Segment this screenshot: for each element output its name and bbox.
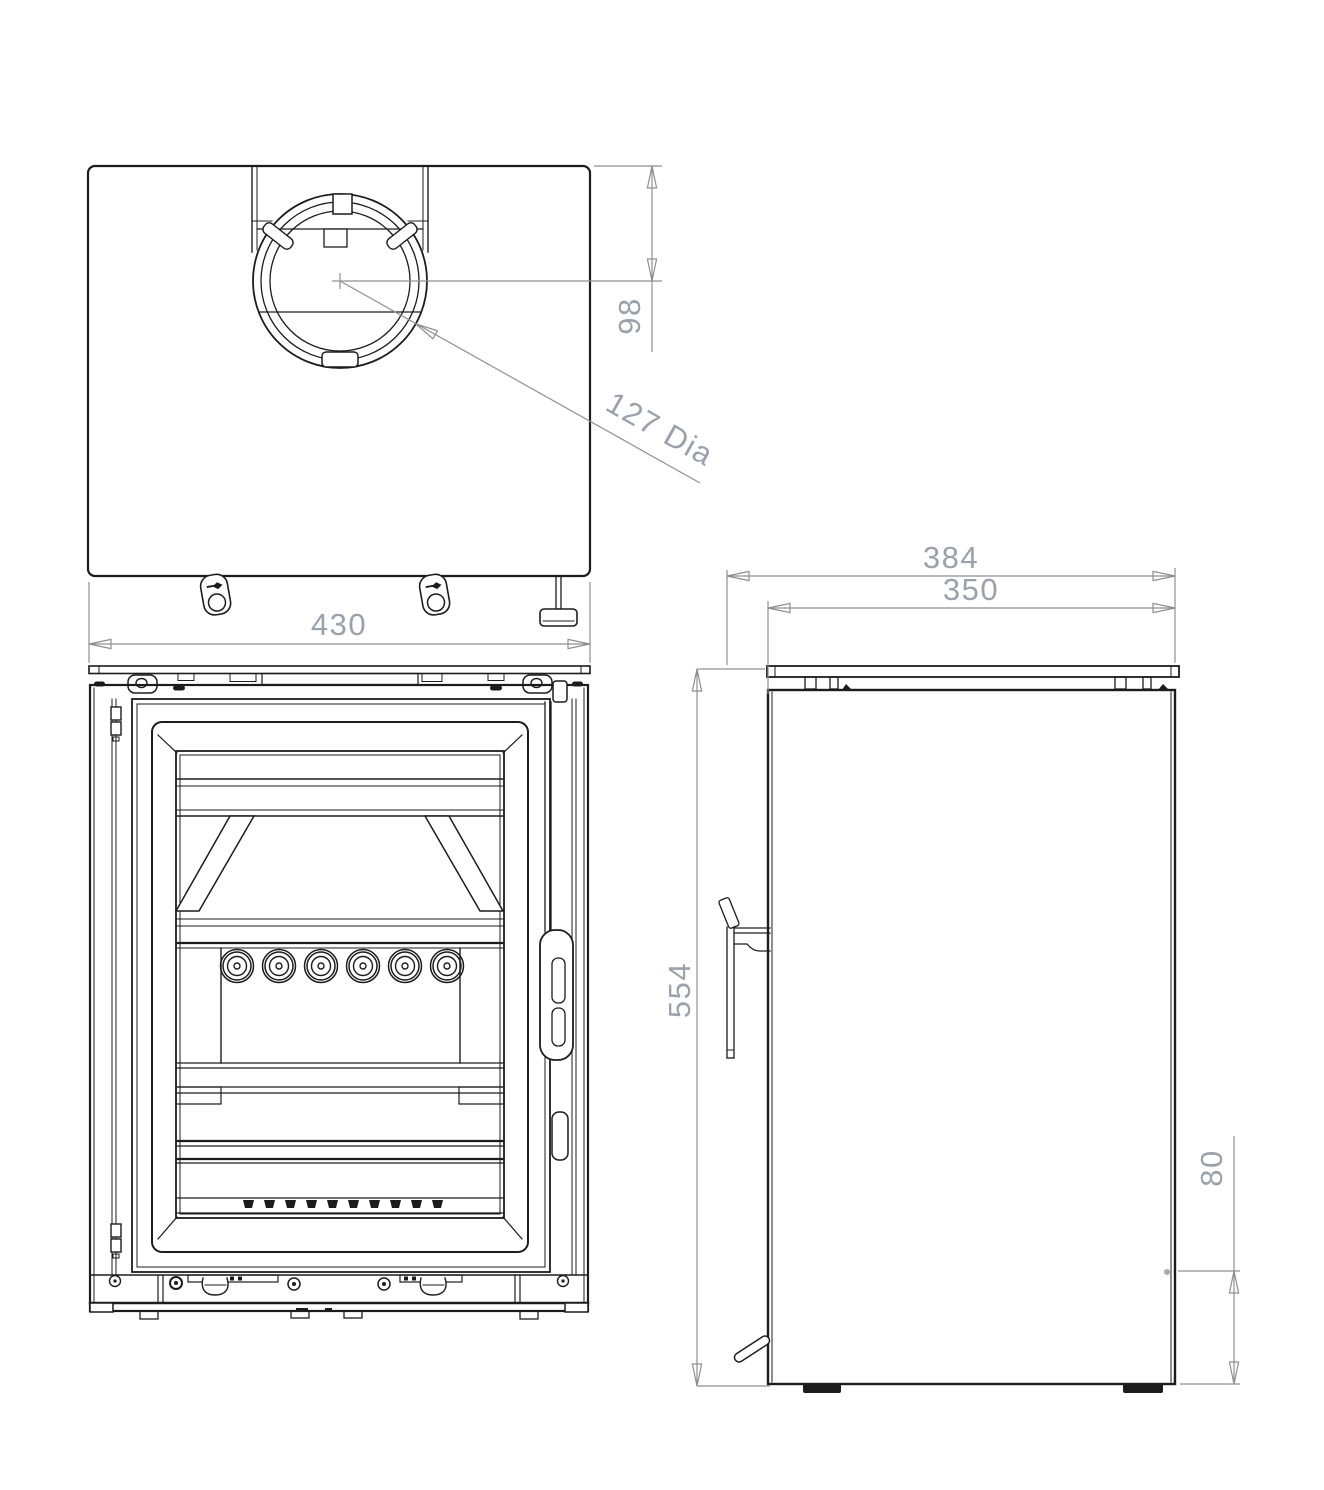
dim-text-flue-diameter: 127 Dia: [600, 385, 719, 473]
collar-bottom-tab: [322, 352, 358, 367]
riddling-lever: [733, 1334, 771, 1363]
dim-flue-98: 98: [346, 166, 662, 352]
front-top-rail: [94, 674, 583, 694]
dim-text-rear-outlet: 80: [1194, 1149, 1229, 1186]
adjustable-foot: [540, 576, 577, 626]
front-top-plate: [89, 666, 590, 674]
handle-grip: [540, 930, 573, 1060]
stove-dimension-drawing: 430 98 127 Dia 384 350 554: [0, 0, 1324, 1490]
side-view: [718, 666, 1179, 1393]
firebox-interior: [176, 779, 504, 1213]
stove-body-side: [768, 690, 1175, 1384]
collar-top-tab: [333, 194, 352, 214]
front-view: [89, 666, 590, 1319]
collar-centre-notch: [324, 229, 347, 247]
side-foot-rear: [1123, 1384, 1163, 1393]
top-plate-outline: [88, 166, 590, 576]
leader-flue-diameter: 127 Dia: [340, 281, 720, 483]
side-foot-front: [803, 1384, 841, 1393]
serrated-air-strip: [243, 1200, 443, 1208]
dim-width-430: 430: [89, 582, 590, 663]
glass-frame: [152, 722, 528, 1252]
dim-text-depth-overall: 384: [923, 540, 979, 575]
side-top-plate: [767, 666, 1179, 677]
dim-depth-350: 350: [768, 572, 1175, 694]
handle-rod-side: [718, 897, 770, 1058]
caster-bracket-left: [199, 573, 233, 617]
caster-bracket-right: [418, 573, 452, 617]
fire-back-bosses: [221, 950, 464, 983]
stove-door: [132, 699, 550, 1272]
dim-text-width: 430: [311, 607, 367, 642]
dim-text-depth-body: 350: [943, 572, 999, 607]
door-catch-right: [420, 1278, 446, 1295]
dim-text-height: 554: [662, 962, 697, 1018]
rear-outlet-point: [1164, 1269, 1170, 1275]
firebrick-cheek-left: [176, 816, 254, 911]
dim-text-flue-offset: 98: [612, 297, 647, 334]
handle-catch: [552, 1112, 568, 1160]
door-catch-left: [202, 1278, 228, 1295]
firebrick-cheek-right: [425, 816, 503, 911]
dim-rear-outlet-80: 80: [1178, 1136, 1240, 1384]
top-view: [88, 166, 590, 626]
front-bottom-rail: [90, 1275, 588, 1319]
technical-drawing-page: 430 98 127 Dia 384 350 554: [0, 0, 1324, 1490]
dim-height-554: 554: [662, 669, 770, 1386]
